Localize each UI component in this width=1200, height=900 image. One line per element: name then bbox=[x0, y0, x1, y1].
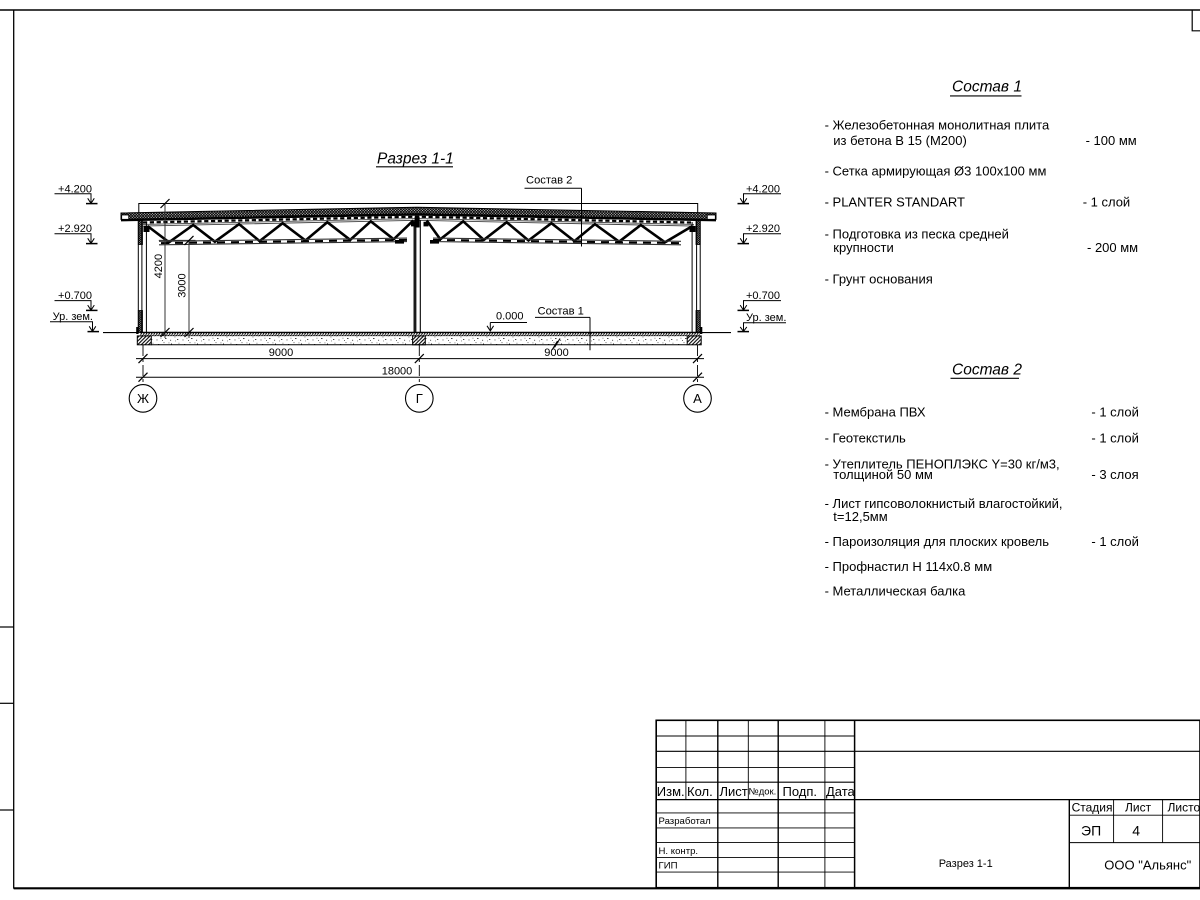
svg-text:Кол.: Кол. bbox=[687, 784, 713, 799]
svg-text:- Профнастил Н 114х0.8 мм: - Профнастил Н 114х0.8 мм bbox=[825, 559, 993, 574]
svg-text:Листов: Листов bbox=[1168, 801, 1200, 815]
svg-text:Ур. зем.: Ур. зем. bbox=[53, 311, 93, 323]
svg-text:Разработал: Разработал bbox=[659, 816, 711, 827]
svg-text:Н. контр.: Н. контр. bbox=[659, 846, 699, 857]
svg-text:- Геотекстиль: - Геотекстиль bbox=[825, 431, 906, 446]
svg-text:- 1 слой: - 1 слой bbox=[1091, 404, 1139, 419]
svg-text:- 1 слой: - 1 слой bbox=[1091, 534, 1139, 549]
svg-text:9000: 9000 bbox=[269, 347, 293, 359]
svg-text:Стадия: Стадия bbox=[1072, 801, 1113, 815]
svg-text:4: 4 bbox=[1132, 823, 1140, 839]
svg-text:Состав 2: Состав 2 bbox=[952, 362, 1022, 379]
svg-text:- Пароизоляция для плоских кро: - Пароизоляция для плоских кровель bbox=[825, 534, 1050, 549]
svg-text:ЭП: ЭП bbox=[1081, 823, 1101, 839]
svg-text:- 200 мм: - 200 мм bbox=[1087, 240, 1138, 255]
svg-text:крупности: крупности bbox=[833, 240, 893, 255]
svg-text:Состав 2: Состав 2 bbox=[526, 175, 572, 187]
svg-text:толщиной 50 мм: толщиной 50 мм bbox=[833, 467, 933, 482]
svg-text:+0.700: +0.700 bbox=[746, 290, 780, 302]
svg-text:Разрез 1-1: Разрез 1-1 bbox=[939, 858, 993, 870]
svg-text:№док.: №док. bbox=[749, 787, 777, 798]
svg-text:Ж: Ж bbox=[137, 391, 149, 406]
svg-text:- Грунт основания: - Грунт основания bbox=[825, 272, 933, 287]
svg-text:- 1 слой: - 1 слой bbox=[1091, 431, 1139, 446]
svg-text:Состав 1: Состав 1 bbox=[952, 78, 1022, 95]
svg-text:ООО "Альянс": ООО "Альянс" bbox=[1104, 858, 1191, 873]
svg-text:Лист: Лист bbox=[720, 784, 748, 799]
svg-text:- 3 слоя: - 3 слоя bbox=[1091, 467, 1138, 482]
svg-text:0.000: 0.000 bbox=[496, 311, 524, 323]
svg-text:Подп.: Подп. bbox=[783, 784, 818, 799]
svg-text:3000: 3000 bbox=[177, 273, 189, 297]
svg-text:- Железобетонная монолитная п: - Железобетонная монолитная плита bbox=[825, 117, 1050, 132]
svg-text:4200: 4200 bbox=[153, 254, 165, 278]
svg-text:Состав 1: Состав 1 bbox=[538, 305, 584, 317]
svg-text:- Металлическая балка: - Металлическая балка bbox=[825, 584, 966, 599]
svg-text:+0.700: +0.700 bbox=[58, 290, 92, 302]
svg-text:Г: Г bbox=[416, 391, 423, 406]
svg-text:18000: 18000 bbox=[382, 365, 413, 377]
svg-text:Ур. зем.: Ур. зем. bbox=[746, 312, 786, 324]
svg-text:из бетона В 15 (М200): из бетона В 15 (М200) bbox=[833, 133, 967, 148]
svg-text:9000: 9000 bbox=[544, 347, 568, 359]
svg-text:Разрез 1-1: Разрез 1-1 bbox=[377, 150, 454, 167]
svg-text:- 100 мм: - 100 мм bbox=[1086, 133, 1137, 148]
svg-text:Дата: Дата bbox=[826, 784, 856, 799]
svg-text:+2.920: +2.920 bbox=[746, 223, 780, 235]
svg-text:Изм.: Изм. bbox=[657, 784, 685, 799]
svg-text:А: А bbox=[693, 391, 702, 406]
svg-text:ГИП: ГИП bbox=[659, 861, 678, 872]
svg-text:- Сетка армирующая Ø3 100х100: - Сетка армирующая Ø3 100х100 мм bbox=[825, 164, 1047, 179]
svg-text:- Мембрана ПВХ: - Мембрана ПВХ bbox=[825, 404, 926, 419]
svg-text:- PLANTER STANDART: - PLANTER STANDART bbox=[825, 194, 965, 209]
svg-text:+2.920: +2.920 bbox=[58, 223, 92, 235]
svg-text:t=12,5мм: t=12,5мм bbox=[833, 509, 887, 524]
svg-text:Лист: Лист bbox=[1125, 801, 1152, 815]
svg-text:- 1 слой: - 1 слой bbox=[1083, 194, 1131, 209]
